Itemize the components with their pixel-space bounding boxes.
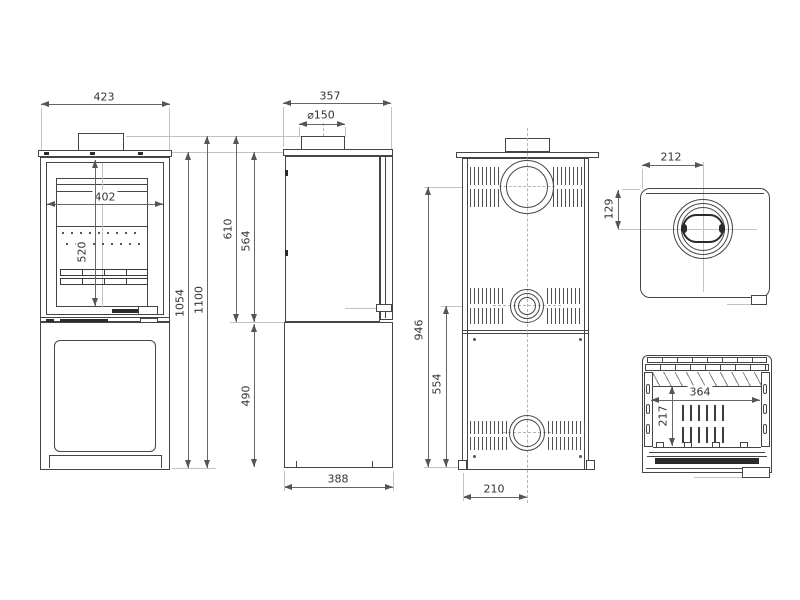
plate-tick [138,152,143,155]
ext-line [727,304,751,305]
screw [473,455,476,458]
dim-line [446,306,447,467]
window-frame-line [57,184,147,185]
screw [579,455,582,458]
door-line [385,157,386,318]
dim-arrow [251,324,257,332]
hinge-mark [285,170,288,176]
dim-label-flue-from-back: 129 [603,197,616,222]
front-air-holes [66,243,146,245]
division-line [462,333,589,334]
damper-pivot [719,224,725,233]
base-line [646,468,768,469]
top-door-handle [751,295,767,305]
back-foot [458,460,467,470]
dim-label-overall-width: 423 [92,91,117,104]
vent-slots [548,437,586,450]
dim-line [642,165,703,166]
dim-arrow [669,438,675,446]
dim-arrow [443,306,449,314]
side-flue-collar [301,136,345,151]
dim-label-overall-height: 1100 [193,284,206,316]
ext-line [391,107,392,149]
vent-slots [470,189,502,207]
front-base-panel [54,340,156,452]
dim-arrow [92,298,98,306]
front-glass-window [56,178,148,307]
dim-line [283,103,391,104]
center-line [703,162,704,292]
plinth-line [161,455,162,468]
front-top-plate [38,150,172,157]
center-line [503,432,551,433]
plinth-line [49,455,162,456]
foot-notch [296,461,297,468]
ext-line [172,468,216,469]
dim-line [284,487,393,488]
center-line [499,186,555,187]
back-body-outline [462,158,589,470]
dim-line [207,136,208,468]
firebox-handle [742,467,770,478]
back-air-inlet-inner [513,419,541,447]
floor-tab [656,442,664,448]
panel-line [584,158,585,470]
side-body-outline [285,156,380,322]
top-flue-collar-ring [677,203,729,255]
front-air-holes [62,232,142,234]
screw [579,338,582,341]
dim-line [236,136,237,322]
dim-label-door-width: 402 [93,191,118,204]
dim-arrow [155,201,163,207]
dim-arrow [251,459,257,467]
wall-bracket [646,384,650,394]
band-mark [46,319,54,323]
front-view: 423 402 520 1054 1100 [0,0,800,600]
screw [473,338,476,341]
base-line [649,452,765,453]
firebox-top-frame [645,364,769,371]
dim-line [188,152,189,468]
dim-label-flue-from-side: 212 [659,151,684,164]
plate-tick [44,152,49,155]
firebox-air-slots [682,427,728,443]
window-frame-line [57,226,147,227]
dim-line [95,160,96,306]
foot-notch [372,461,373,468]
back-rear-outlet [510,289,544,323]
dim-label-opening-width: 364 [688,386,713,399]
front-grille-row [60,278,148,285]
panel-line [467,158,468,470]
ext-line [345,127,346,137]
vent-slots [547,308,583,324]
top-front-edge [646,193,764,194]
dim-arrow [651,397,659,403]
floor-tab [684,442,692,448]
top-flue-collar-inner [681,207,725,251]
dim-arrow [752,397,760,403]
dim-arrow [425,459,431,467]
plate-tick [90,152,95,155]
firebox-left-wall [644,372,653,447]
dim-arrow [162,101,170,107]
dim-line [672,386,673,446]
dim-label-overall-depth: 357 [318,90,343,103]
dim-line [463,497,527,498]
dim-label-flue-offset: 210 [482,483,507,496]
ext-line [345,308,376,309]
firebox-view: 364 217 [0,0,800,600]
top-view: 212 129 [0,0,800,600]
vent-slots [553,167,585,185]
back-flue-opening [500,160,554,214]
ext-line [424,467,462,468]
ext-line [694,477,742,478]
firebox-air-slots [682,405,728,421]
back-foot [586,460,595,470]
wall-bracket [763,404,767,414]
dim-arrow [385,484,393,490]
side-base-outline [284,322,393,468]
dim-label-flue-center-height: 946 [413,318,426,343]
dim-arrow [47,201,55,207]
window-frame-line [57,191,147,192]
dim-line [618,190,619,229]
dim-label-base-depth: 388 [326,473,351,486]
dim-label-body-height: 1054 [174,287,187,319]
stove-technical-drawing: 423 402 520 1054 1100 [0,0,800,600]
division-line [40,317,170,318]
back-view: 946 554 210 [0,0,800,600]
dim-arrow [204,460,210,468]
dim-arrow [695,162,703,168]
dim-line [651,400,760,401]
side-view: 357 ⌀150 610 564 490 388 [0,0,800,600]
front-latch-plate [138,306,158,315]
vent-slots [470,288,506,304]
front-door-frame [46,162,164,315]
dim-arrow [615,190,621,198]
center-line [323,118,324,162]
dim-arrow [185,152,191,160]
front-body-outline [40,157,170,322]
dim-arrow [251,152,257,160]
vent-slots [470,308,506,324]
ext-line [230,322,286,323]
dim-line [41,104,170,105]
ext-line [424,187,504,188]
dim-line [47,204,163,205]
vent-slots [470,437,508,450]
ext-line [463,473,464,501]
dim-arrow [383,100,391,106]
dim-arrow [204,136,210,144]
division-line [462,330,589,331]
dim-label-rear-outlet-height: 554 [431,372,444,397]
side-top-plate [283,149,393,156]
dim-arrow [337,121,345,127]
dim-line [254,152,255,322]
top-flue-collar [673,199,733,259]
damper-pivot [681,224,687,233]
dim-arrow [233,314,239,322]
center-line [527,128,528,503]
dim-arrow [443,459,449,467]
front-flue-collar [78,133,124,151]
band-latch [140,318,158,324]
firebox-top-ledge [647,357,767,363]
plinth-line [49,455,50,468]
vent-slots [470,421,508,434]
ext-line [441,306,509,307]
dim-arrow [669,386,675,394]
dim-line [299,124,345,125]
vent-slots [470,167,502,185]
center-line [493,305,561,306]
ext-line [283,107,284,147]
front-base-outline [40,322,170,470]
back-air-inlet [509,415,545,451]
wall-bracket [646,424,650,434]
ext-line [169,108,170,150]
back-rear-outlet-ring [514,293,540,319]
hinge-mark [285,250,288,256]
firebox-floor [653,447,761,448]
ext-line [642,169,643,189]
wall-bracket [646,404,650,414]
back-flue-opening-inner [506,166,548,208]
ext-line [622,189,640,190]
firebox-right-wall [761,372,770,447]
dim-label-opening-height: 217 [657,404,670,429]
dim-arrow [642,162,650,168]
wall-bracket [763,424,767,434]
dim-arrow [299,121,307,127]
vent-slots [553,189,585,207]
dim-label-plate-to-base: 564 [240,229,253,254]
dim-label-collar-to-base: 610 [222,217,235,242]
floor-tab [740,442,748,448]
ext-line [126,136,302,137]
back-top-plate [456,152,599,158]
ext-line [393,471,394,491]
ext-line [172,152,286,153]
dim-arrow [233,136,239,144]
back-rear-outlet-hole [518,297,536,315]
center-line [102,163,103,308]
top-body-outline [640,188,770,298]
dim-line [254,324,255,467]
dim-arrow [425,187,431,195]
dim-arrow [615,221,621,229]
floor-tab [712,442,720,448]
side-door-front [380,156,393,320]
back-flue-collar [505,138,550,152]
dim-arrow [463,494,471,500]
dim-arrow [283,100,291,106]
dim-label-glass-height: 520 [76,240,89,265]
vent-slots [547,288,583,304]
firebox-outline [642,355,772,473]
band-mark [60,319,108,323]
ext-line [284,471,285,491]
dim-arrow [92,160,98,168]
dim-label-flue-diameter: ⌀150 [305,109,337,122]
dim-arrow [284,484,292,490]
base-line [647,456,767,457]
center-line [618,229,757,230]
front-grille-row [60,269,148,276]
top-damper [682,214,724,243]
ext-line [41,108,42,150]
firebox-baffle [649,372,765,387]
firebox-grate-front [655,458,759,464]
vent-slots [548,421,586,434]
side-door-handle [376,304,392,312]
dim-arrow [519,494,527,500]
dim-arrow [185,460,191,468]
dim-arrow [251,314,257,322]
dim-label-base-height: 490 [240,384,253,409]
wall-bracket [763,384,767,394]
dim-arrow [41,101,49,107]
dim-line [428,187,429,467]
front-air-lever [112,309,148,313]
